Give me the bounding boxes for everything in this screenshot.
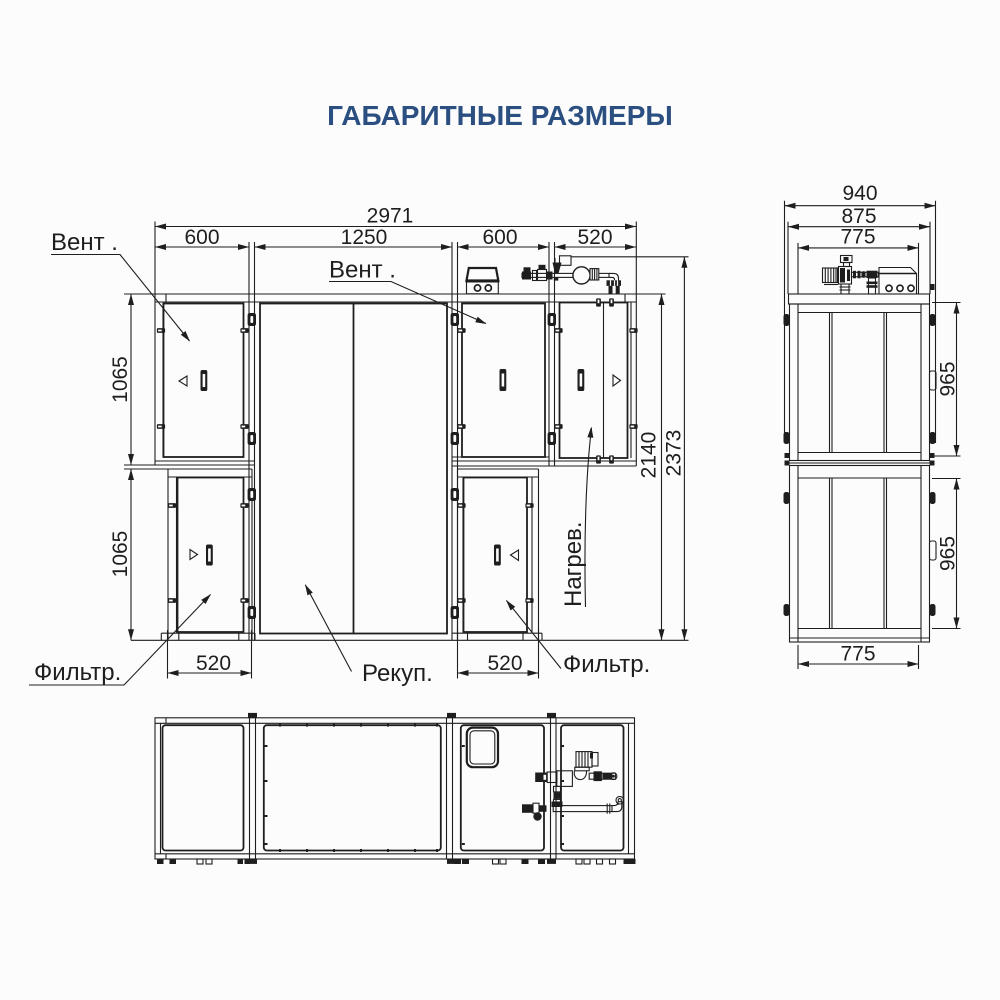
svg-text:2971: 2971 bbox=[367, 205, 414, 228]
svg-text:600: 600 bbox=[184, 226, 219, 249]
svg-text:Рекуп.: Рекуп. bbox=[362, 660, 433, 687]
svg-text:965: 965 bbox=[937, 361, 960, 396]
svg-text:775: 775 bbox=[840, 643, 875, 666]
svg-text:2140: 2140 bbox=[638, 432, 661, 479]
svg-text:520: 520 bbox=[487, 652, 522, 675]
svg-text:2373: 2373 bbox=[663, 430, 686, 477]
svg-text:1065: 1065 bbox=[109, 356, 132, 403]
svg-text:Вент .: Вент . bbox=[51, 229, 118, 256]
svg-text:Нагрев.: Нагрев. bbox=[560, 521, 587, 607]
svg-text:965: 965 bbox=[937, 536, 960, 571]
svg-text:1250: 1250 bbox=[341, 226, 388, 249]
svg-text:Вент .: Вент . bbox=[329, 257, 396, 284]
svg-text:Фильтр.: Фильтр. bbox=[34, 659, 121, 686]
svg-text:775: 775 bbox=[840, 226, 875, 249]
svg-text:520: 520 bbox=[577, 226, 612, 249]
svg-text:Фильтр.: Фильтр. bbox=[563, 651, 650, 678]
svg-text:940: 940 bbox=[842, 182, 877, 205]
svg-text:1065: 1065 bbox=[109, 531, 132, 578]
svg-text:600: 600 bbox=[482, 226, 517, 249]
svg-text:ГАБАРИТНЫЕ РАЗМЕРЫ: ГАБАРИТНЫЕ РАЗМЕРЫ bbox=[327, 100, 673, 131]
svg-text:520: 520 bbox=[196, 652, 231, 675]
